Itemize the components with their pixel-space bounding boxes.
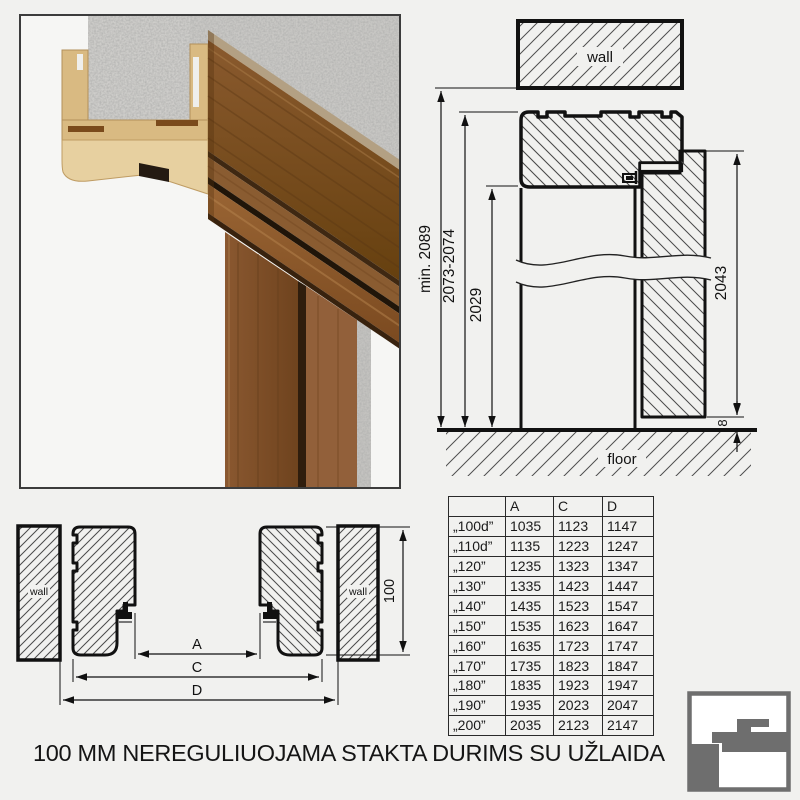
- dim-d-label: D: [192, 683, 202, 699]
- table-row: „110d” 1135 1223 1247: [449, 536, 654, 556]
- table-cell: 1547: [603, 596, 654, 616]
- table-cell: „200”: [449, 715, 506, 735]
- table-cell: 2035: [506, 715, 554, 735]
- table-cell: 1223: [554, 536, 603, 556]
- plan-frame-profile-right: [260, 527, 322, 655]
- table-cell: „130”: [449, 576, 506, 596]
- table-row: „170” 1735 1823 1847: [449, 656, 654, 676]
- table-cell: 1835: [506, 676, 554, 696]
- vertical-section: wall floor: [417, 21, 757, 476]
- wall-label: wall: [586, 49, 613, 66]
- table-row: „130” 1335 1423 1447: [449, 576, 654, 596]
- plan-wall-right-label: wall: [348, 586, 367, 598]
- table-row: „140” 1435 1523 1547: [449, 596, 654, 616]
- table-cell: „110d”: [449, 536, 506, 556]
- dim-frame-height: 2073-2074: [441, 229, 458, 304]
- table-cell: 1347: [603, 556, 654, 576]
- table-header-row: A C D: [449, 497, 654, 517]
- mdf-joint-left: [68, 126, 104, 132]
- size-table: A C D „100d” 1035 1123 1147 „110d” 1135 …: [448, 496, 654, 736]
- technical-drawing: wall floor: [0, 0, 800, 800]
- table-row: „100d” 1035 1123 1147: [449, 516, 654, 536]
- table-cell: 1923: [554, 676, 603, 696]
- table-cell: „150”: [449, 616, 506, 636]
- table-cell: 1035: [506, 516, 554, 536]
- dim-opening-height: 2029: [468, 288, 485, 322]
- floor-label: floor: [607, 451, 636, 468]
- door-leaf: [642, 151, 705, 417]
- table-cell: 2023: [554, 695, 603, 715]
- dim-floor-gap: 8: [715, 419, 730, 426]
- table-row: „180” 1835 1923 1947: [449, 676, 654, 696]
- table-header-cell: [449, 497, 506, 517]
- dim-a-label: A: [192, 637, 202, 653]
- mdf-groove-right: [193, 57, 199, 107]
- table-cell: 1735: [506, 656, 554, 676]
- table-header-cell: D: [603, 497, 654, 517]
- table-row: „150” 1535 1623 1647: [449, 616, 654, 636]
- brand-logo: [687, 691, 793, 793]
- table-cell: 1747: [603, 636, 654, 656]
- table-cell: 1535: [506, 616, 554, 636]
- table-cell: 1723: [554, 636, 603, 656]
- table-cell: „190”: [449, 695, 506, 715]
- table-cell: 1247: [603, 536, 654, 556]
- table-cell: 1623: [554, 616, 603, 636]
- table-cell: 1323: [554, 556, 603, 576]
- table-cell: „120”: [449, 556, 506, 576]
- table-cell: 1135: [506, 536, 554, 556]
- table-header-cell: C: [554, 497, 603, 517]
- dim-door-height: 2043: [713, 266, 730, 300]
- plan-frame-profile-left: [73, 527, 135, 655]
- table-cell: 1847: [603, 656, 654, 676]
- plan-wall-left-label: wall: [29, 586, 48, 598]
- dim-min-total: min. 2089: [417, 225, 434, 293]
- table-cell: 1823: [554, 656, 603, 676]
- table-cell: 1635: [506, 636, 554, 656]
- table-cell: 1947: [603, 676, 654, 696]
- table-row: „200” 2035 2123 2147: [449, 715, 654, 735]
- mdf-groove-left: [77, 54, 83, 70]
- mdf-joint-right: [156, 120, 198, 126]
- table-cell: 1523: [554, 596, 603, 616]
- plan-section: wall wall A C D 100: [18, 526, 410, 705]
- table-cell: 2047: [603, 695, 654, 715]
- caption-title: 100 MM NEREGULIUOJAMA STAKTA DURIMS SU U…: [33, 740, 773, 767]
- table-cell: 1147: [603, 516, 654, 536]
- table-cell: 1435: [506, 596, 554, 616]
- dim-frame-depth-label: 100: [382, 579, 398, 603]
- table-cell: 2123: [554, 715, 603, 735]
- table-cell: „140”: [449, 596, 506, 616]
- table-cell: 1123: [554, 516, 603, 536]
- table-cell: „160”: [449, 636, 506, 656]
- dim-c-label: C: [192, 660, 202, 676]
- table-cell: 1335: [506, 576, 554, 596]
- table-row: „120” 1235 1323 1347: [449, 556, 654, 576]
- table-cell: 1423: [554, 576, 603, 596]
- logo-block: [690, 744, 719, 790]
- table-cell: 1647: [603, 616, 654, 636]
- table-cell: 1235: [506, 556, 554, 576]
- logo-bar: [712, 732, 787, 752]
- frame-overlay-lip: [640, 163, 682, 171]
- table-cell: „180”: [449, 676, 506, 696]
- table-cell: „170”: [449, 656, 506, 676]
- table-row: „160” 1635 1723 1747: [449, 636, 654, 656]
- table-cell: „100d”: [449, 516, 506, 536]
- table-cell: 2147: [603, 715, 654, 735]
- spec-sheet: wall floor: [0, 0, 800, 800]
- table-cell: 1935: [506, 695, 554, 715]
- table-cell: 1447: [603, 576, 654, 596]
- table-row: „190” 1935 2023 2047: [449, 695, 654, 715]
- table-header-cell: A: [506, 497, 554, 517]
- render-3d: [20, 15, 400, 488]
